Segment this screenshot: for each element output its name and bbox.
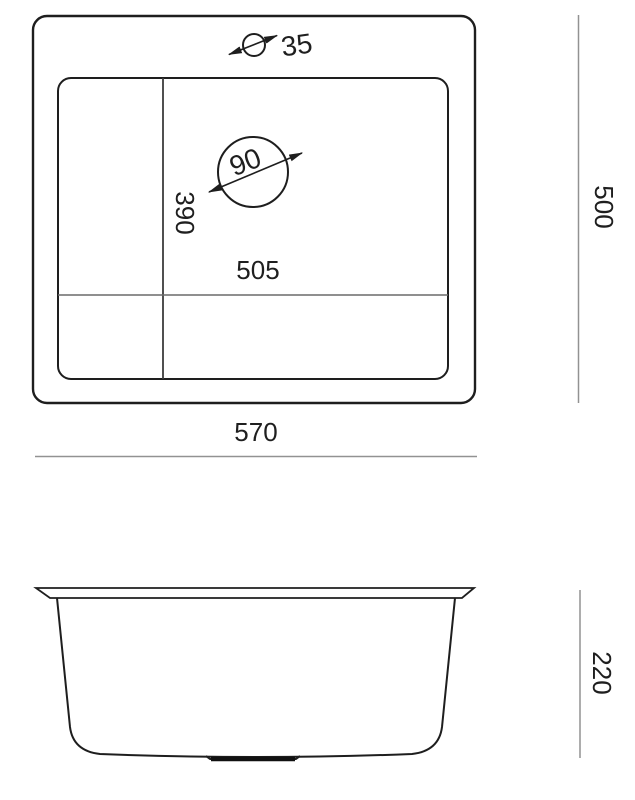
bowl-width-label: 505 [236,255,279,285]
overall-depth-label: 500 [589,185,619,228]
top-view: 35 90 390 505 [33,16,475,403]
overall-width-label: 570 [234,417,277,447]
overall-dimensions: 500 570 [35,15,619,457]
faucet-diameter-label: 35 [279,27,314,62]
drawing-canvas: 35 90 390 505 500 570 220 [0,0,635,800]
side-bowl-profile [57,598,455,757]
side-rim-flange [36,588,474,598]
drain-diameter-label: 90 [225,142,265,182]
sink-outer-edge [33,16,475,403]
sink-bowl-edge [58,78,448,379]
bowl-depth-label: 390 [170,191,200,234]
side-view: 220 [36,588,617,759]
faucet-diameter-arrow [229,36,277,55]
side-height-label: 220 [587,651,617,694]
